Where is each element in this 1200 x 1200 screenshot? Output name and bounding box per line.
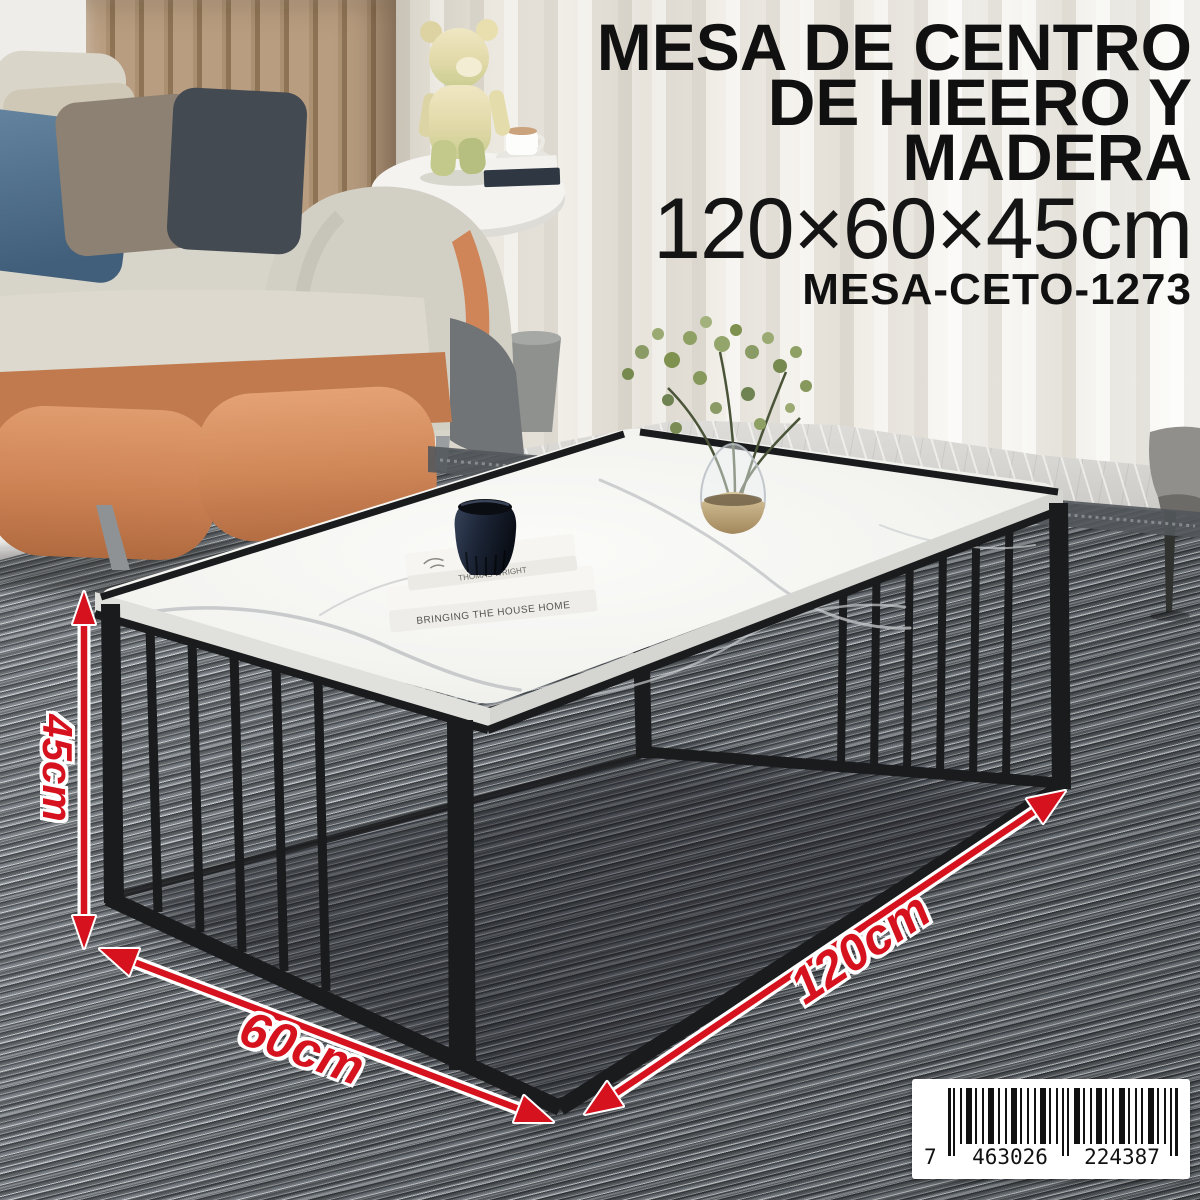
barcode-label: 7 463026 224387: [912, 1079, 1190, 1179]
barcode-group2: 224387: [1072, 1142, 1172, 1172]
height-dimension-label: 45cm: [31, 693, 83, 843]
product-header: MESA DE CENTRO DE HIEERO Y MADERA 120×60…: [472, 20, 1192, 313]
barcode-digits: 7 463026 224387: [912, 1142, 1190, 1172]
product-size: 120×60×45cm: [472, 193, 1192, 265]
barcode-group1: 463026: [960, 1142, 1060, 1172]
product-title-line2: DE HIEERO Y MADERA: [472, 75, 1192, 185]
product-sku: MESA-CETO-1273: [472, 267, 1192, 313]
barcode-lead-digit: 7: [924, 1142, 937, 1172]
product-image: BRINGING THE HOUSE HOME THOMAS WRIGHT: [0, 0, 1200, 1200]
